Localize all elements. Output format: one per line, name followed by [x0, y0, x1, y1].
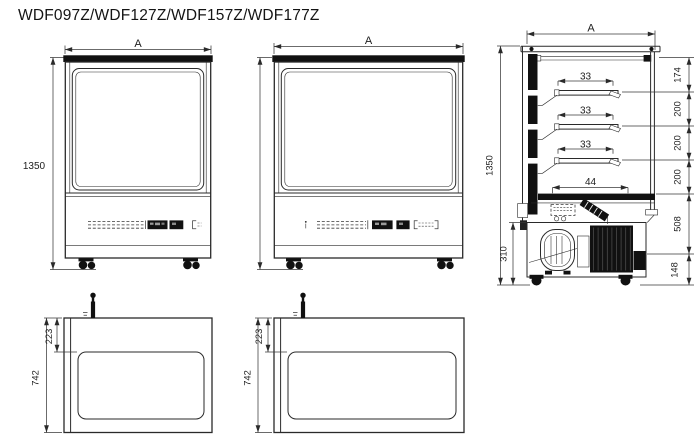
shelf-2 — [538, 124, 621, 140]
casters-front — [286, 258, 454, 269]
drawing-sheet: WDF097Z/WDF127Z/WDF157Z/WDF177Z A 1350 — [0, 0, 700, 438]
control-compartment — [551, 198, 609, 224]
machine-panel — [578, 236, 590, 267]
dim-label-inset: 223 — [254, 329, 264, 345]
dim-label-shelf: 33 — [580, 71, 592, 82]
casters-front — [79, 258, 200, 269]
roof — [521, 46, 660, 51]
dim-label-depth: 742 — [243, 370, 253, 386]
shelf-3 — [538, 158, 621, 174]
interior-lamp — [536, 55, 651, 62]
dim-label-inset: 223 — [44, 329, 54, 345]
dim-width-A: A — [274, 35, 463, 54]
dim-machine-height-310: 310 — [499, 223, 527, 286]
dim-label-width: A — [365, 35, 373, 47]
dim-label-shelf: 33 — [580, 105, 592, 116]
display-deck — [538, 194, 655, 200]
dim-label-depth: A — [587, 23, 595, 35]
plan-view-narrow: 742 223 — [31, 293, 213, 433]
top-canopy — [272, 55, 464, 62]
back-panel — [528, 54, 538, 215]
dim-label-chain-200c: 200 — [673, 169, 683, 185]
power-plug-icon — [83, 293, 96, 318]
power-plug-icon — [293, 293, 306, 318]
rear-hinge-block — [518, 204, 528, 218]
dim-deck-depth-44: 44 — [553, 177, 629, 193]
dim-width-A: A — [65, 38, 211, 54]
dim-shelf-depth-3: 33 — [558, 139, 613, 153]
dim-label-height: 1350 — [485, 155, 495, 176]
dim-label-deck: 44 — [585, 177, 597, 188]
cabinet-body — [274, 62, 462, 258]
cabinet-outline — [64, 318, 212, 433]
condenser — [590, 226, 633, 273]
dim-shelf-depth-1: 33 — [558, 71, 613, 85]
dim-label-depth: 742 — [31, 370, 41, 386]
dim-label-chain-200b: 200 — [673, 135, 683, 151]
shelf-1 — [538, 90, 621, 106]
dim-label-width: A — [134, 38, 142, 50]
louver-grille — [580, 198, 610, 221]
dim-label-chain-508: 508 — [673, 216, 683, 232]
dim-label-machine-height: 310 — [499, 246, 509, 262]
technical-drawing: WDF097Z/WDF127Z/WDF157Z/WDF177Z A 1350 — [0, 0, 700, 438]
side-section-view: A 1350 — [485, 23, 695, 286]
dim-label-height: 1350 — [23, 161, 46, 172]
cabinet-outline — [274, 318, 464, 433]
compressor — [541, 230, 575, 275]
cabinet-body — [65, 62, 210, 258]
dim-label-chain-148: 148 — [670, 262, 680, 278]
dim-label-chain-200a: 200 — [673, 101, 683, 117]
dim-shelf-depth-2: 33 — [558, 105, 613, 119]
fan-bracket — [634, 251, 646, 270]
dim-label-chain-174: 174 — [673, 67, 683, 83]
front-view-wide: A — [257, 35, 465, 270]
dim-label-shelf: 33 — [580, 139, 592, 150]
plan-view-wide: 742 223 — [243, 293, 465, 433]
model-title: WDF097Z/WDF127Z/WDF157Z/WDF177Z — [18, 7, 320, 24]
casters-side — [530, 275, 633, 286]
top-canopy — [63, 55, 212, 62]
rear-bracket — [520, 220, 527, 230]
front-view-narrow: A 1350 — [23, 38, 213, 270]
